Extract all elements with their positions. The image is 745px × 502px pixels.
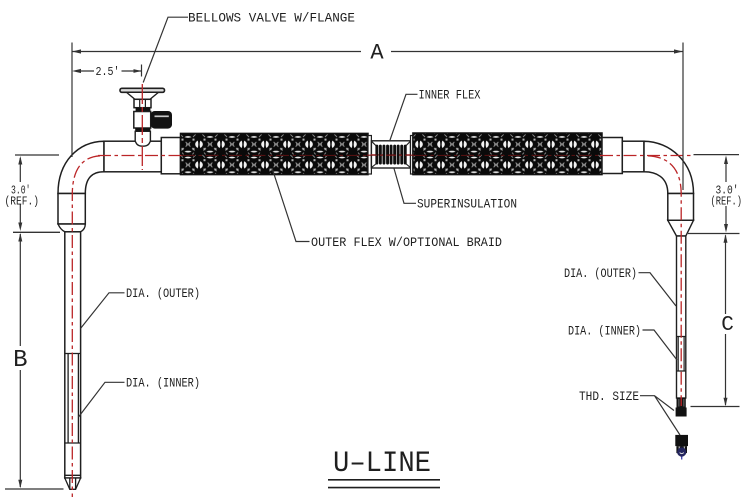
svg-text:SUPERINSULATION: SUPERINSULATION [417,196,517,211]
svg-text:DIA. (INNER): DIA. (INNER) [568,323,641,338]
svg-text:DIA. (INNER): DIA. (INNER) [126,376,200,391]
svg-text:C: C [721,314,734,337]
svg-text:(REF.): (REF.) [5,195,40,209]
svg-text:A: A [370,41,384,66]
svg-text:(REF.): (REF.) [711,195,743,209]
svg-text:BELLOWS VALVE W/FLANGE: BELLOWS VALVE W/FLANGE [188,11,355,26]
svg-text:THD. SIZE: THD. SIZE [579,389,639,404]
svg-text:DIA. (OUTER): DIA. (OUTER) [126,286,200,301]
svg-text:U–LINE: U–LINE [333,447,431,481]
svg-text:B: B [13,347,27,374]
svg-text:DIA. (OUTER): DIA. (OUTER) [564,266,637,281]
svg-text:2.5': 2.5' [96,65,120,79]
svg-text:INNER FLEX: INNER FLEX [419,87,481,102]
svg-text:OUTER FLEX W/OPTIONAL BRAID: OUTER FLEX W/OPTIONAL BRAID [311,235,502,250]
